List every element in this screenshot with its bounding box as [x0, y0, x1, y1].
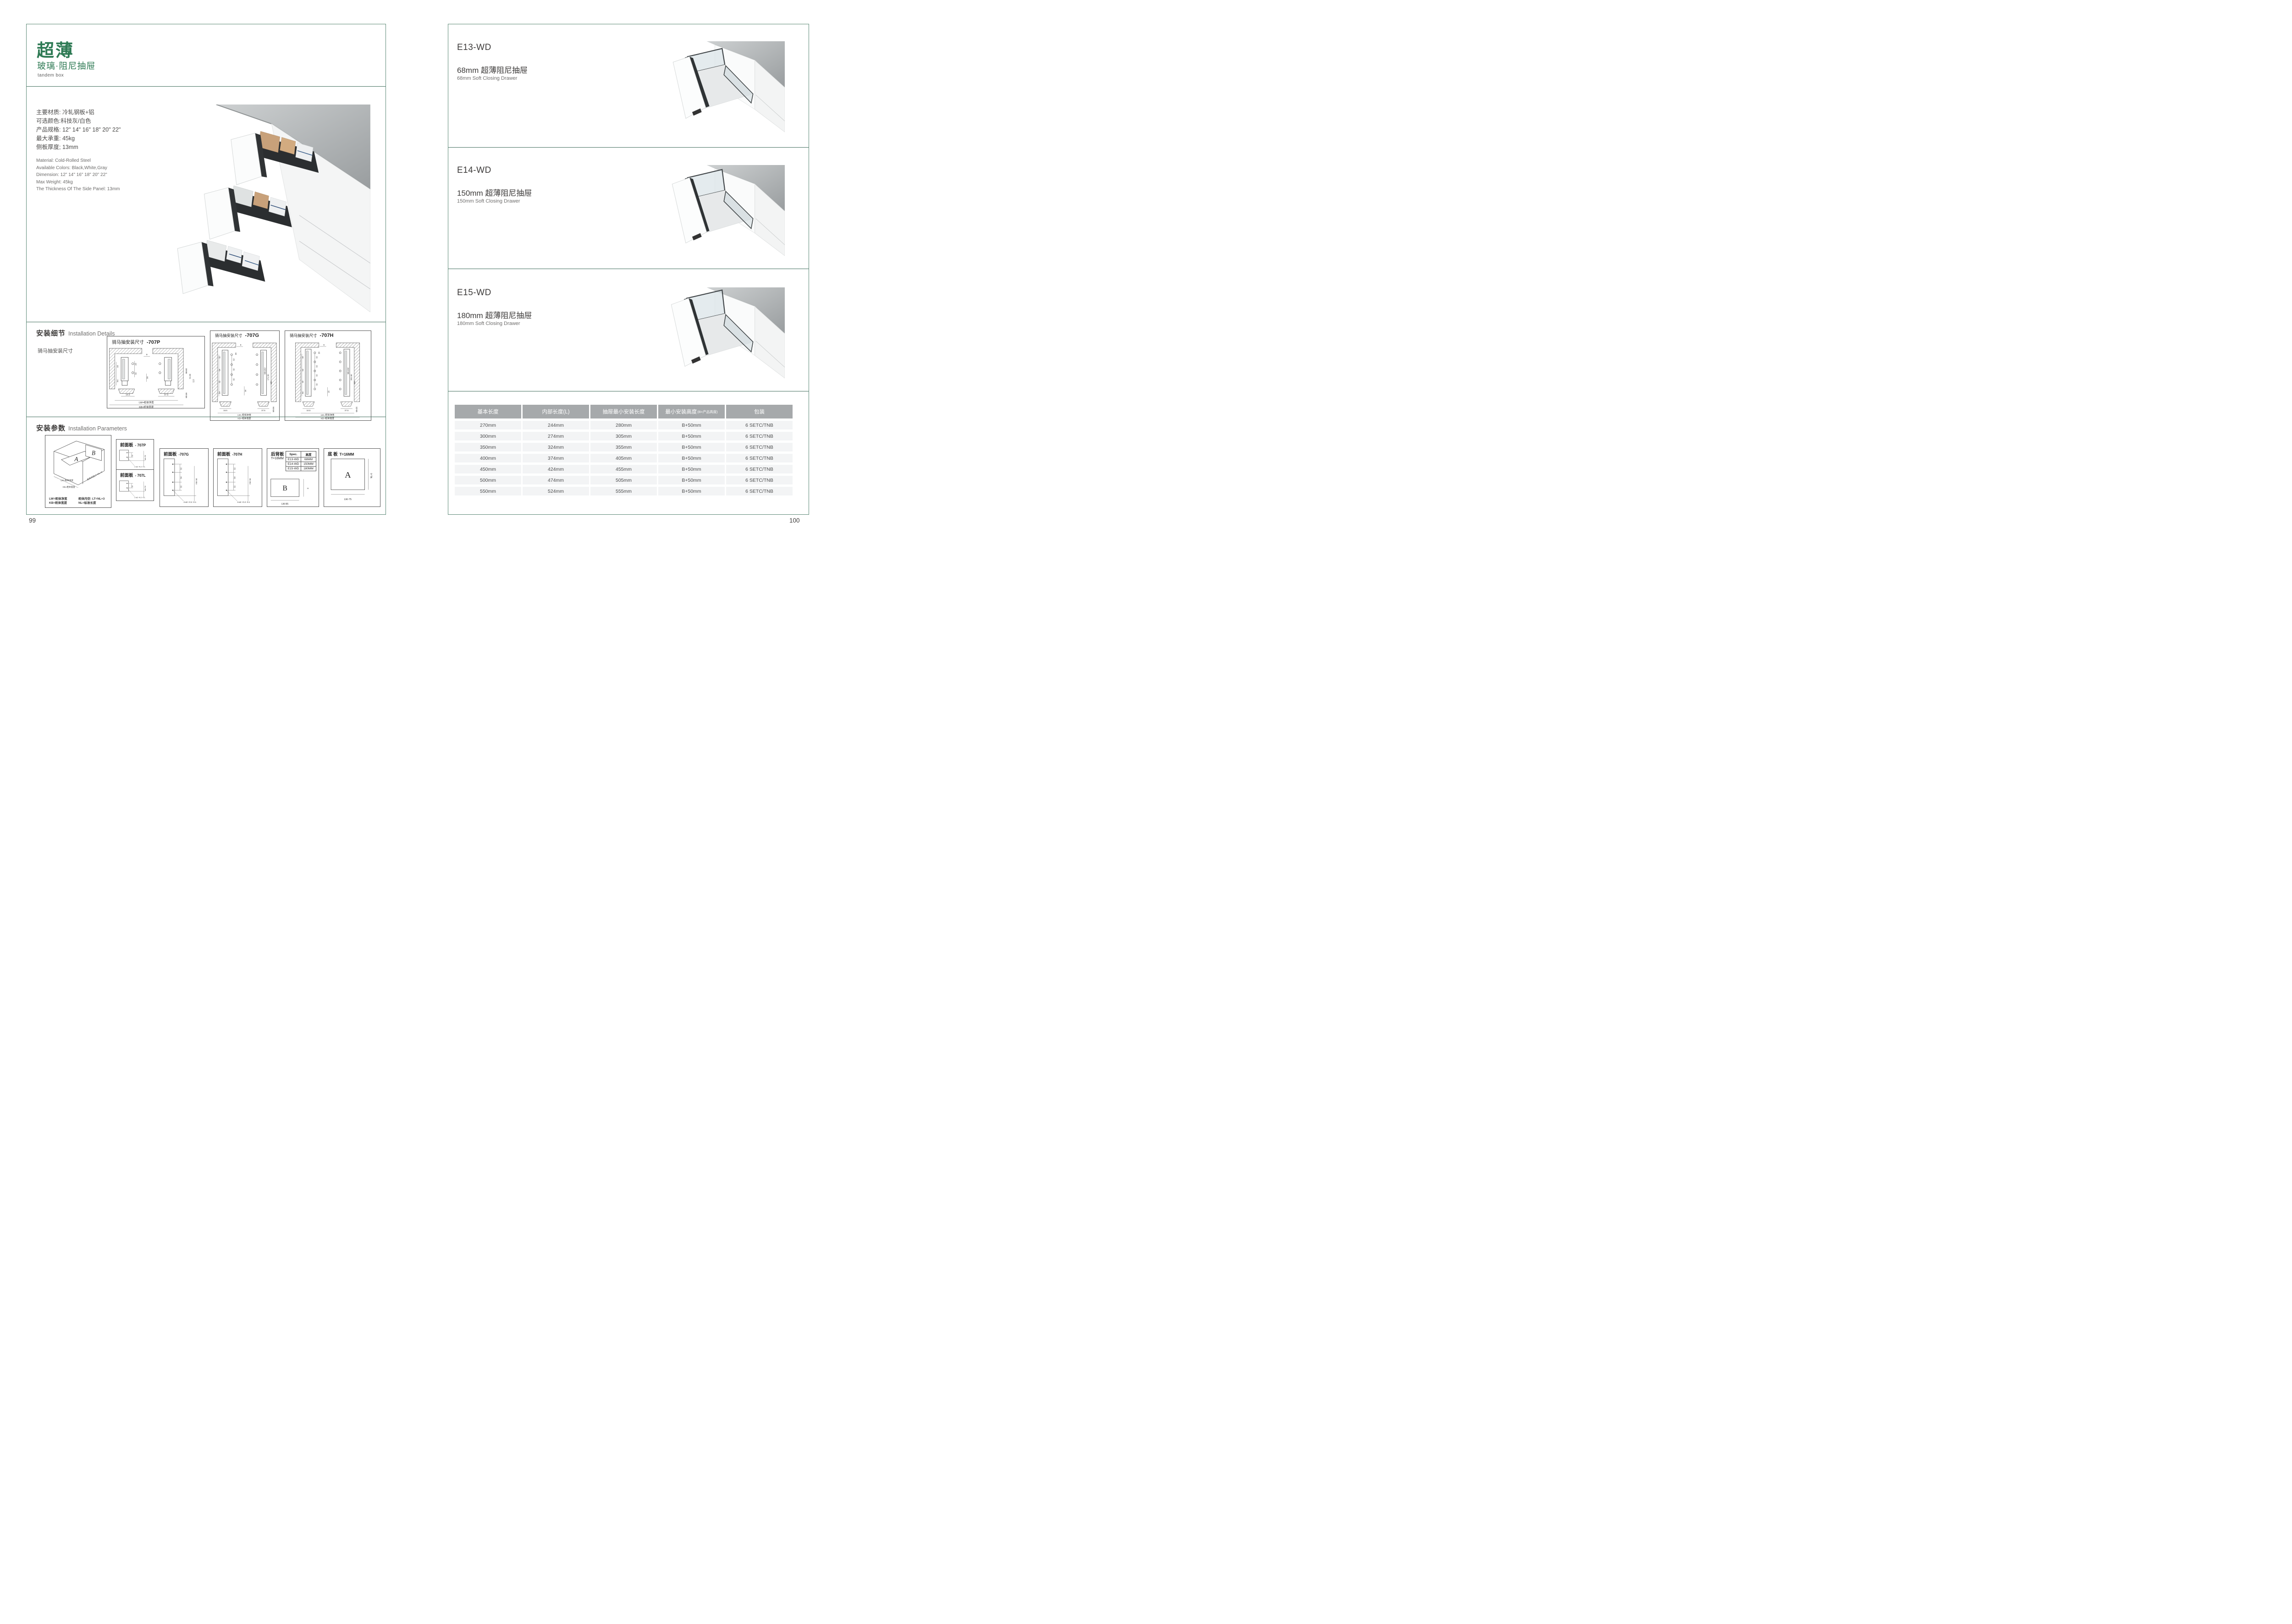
table-cell: B+50mm — [658, 421, 725, 429]
panel-title-text: 前面板 — [217, 452, 231, 457]
product-code: E14-WD — [457, 165, 491, 176]
drawing-code: -707P — [147, 340, 160, 345]
drawing-title-text: 骑马抽安装尺寸 — [290, 333, 317, 338]
dim-label: KB=柜体宽度 — [321, 417, 334, 419]
dim-label: 91.50 — [189, 374, 191, 379]
table-cell: 6 SETC/TNB — [726, 487, 793, 495]
table-cell: 300mm — [455, 432, 521, 440]
dim-label: min 54 — [144, 455, 146, 460]
dim-label: 9 — [146, 353, 148, 356]
drawing-707H-figure: 9 20 32 32 32 32 16 32 64 32 54 Min192 2… — [285, 342, 370, 419]
table-row: 270mm 244mm 280mm B+50mm 6 SETC/TNB — [455, 421, 793, 429]
dim-label: LW-75 — [344, 498, 352, 501]
legend-item: NL=标准长度 — [78, 501, 108, 505]
right-page: E13-WD 68mm 超薄阻尼抽屉 68mm Soft Closing Dra… — [448, 24, 809, 515]
table-cell: 405mm — [590, 454, 657, 462]
details-subheading: 骑马抽安装尺寸 — [38, 347, 73, 354]
panel-title: 前面板- 707L — [116, 470, 154, 478]
divider — [448, 269, 809, 269]
bottom-panel-figure: A NL-6 LW-75 — [324, 457, 379, 503]
dim-label: 113 — [193, 379, 195, 383]
rear-spec-table: Spec.高度 E13-WD68MM E14-WD150MM E15-WD180… — [286, 451, 316, 471]
spec-line: 侧板厚度; 13mm — [36, 143, 121, 152]
spec-line: 最大承重: 45kg — [36, 134, 121, 143]
dim-label: 64 — [180, 476, 182, 479]
drawing-title: 骑马抽安装尺寸-707P — [107, 336, 204, 347]
table-cell: 270mm — [455, 421, 521, 429]
legend-item: 柜体内空: LT=NL+3 — [78, 497, 108, 501]
dim-label: 9 — [240, 344, 242, 346]
spec-line: 主要材质: 冷轧钢板+铝 — [36, 108, 121, 117]
panel-title: 前面板- 707P — [116, 440, 154, 448]
spec-line: Max Weight: 45kg — [36, 179, 120, 186]
dim-label: Min36 — [356, 407, 358, 413]
column-header: 基本长度 — [455, 405, 521, 418]
dim-label: min 54 — [195, 478, 198, 484]
page-tagline: tandem box — [38, 73, 64, 78]
spec-table: 基本长度 内部长度(L) 抽屉最小安装长度 最小安装高度(B=产品高度) 包装 … — [455, 405, 793, 498]
dim-label: 201.50 — [350, 374, 353, 380]
spec-header: 高度 — [301, 451, 316, 457]
dim-label: 16.5 — [126, 393, 130, 396]
spec-line: Available Colors: Black,White,Gray — [36, 165, 120, 172]
product-code: E15-WD — [457, 288, 491, 298]
page-number-right: 100 — [789, 517, 800, 524]
drawing-title-text: 骑马抽安装尺寸 — [112, 340, 144, 345]
dim-label: 32 — [219, 356, 221, 358]
table-cell: B+50mm — [658, 443, 725, 451]
table-cell: B+50mm — [658, 454, 725, 462]
panel-code: - 707P — [135, 443, 146, 447]
dim-label: 4-ø2 +0.2 -0.1 — [183, 501, 196, 503]
dim-label: LW=柜体净宽 — [139, 401, 154, 404]
panel-title-text: 前面板 — [120, 473, 133, 478]
panel-front-707H: 前面板-707H 32 64 32 min 54 4-ø2 +0.2 -0.1 — [213, 448, 262, 507]
dim-label: Min36 — [272, 407, 275, 413]
panel-cabinet-iso: A B LW=柜体净宽 KB=柜体宽度 柜体内空LT=NL+3 LW=柜体净宽柜… — [45, 435, 111, 508]
table-cell: 280mm — [590, 421, 657, 429]
dim-label: 32 — [219, 380, 221, 383]
dim-label: 37.5 — [164, 393, 169, 396]
dim-label: 171.50 — [267, 374, 269, 380]
drawer-middle — [204, 186, 292, 239]
panel-title-text: 后背板 — [271, 452, 284, 457]
spec-cell: 150MM — [301, 462, 316, 467]
front-panel-figure: 32 min 54 2-ø2 +0.2 -0.1 — [116, 478, 153, 500]
panel-code: -707G — [179, 452, 189, 457]
drawing-title: 骑马抽安装尺寸-707H — [285, 331, 371, 342]
table-cell: 6 SETC/TNB — [726, 432, 793, 440]
divider — [448, 147, 809, 148]
dim-label: min 54 — [249, 478, 251, 484]
table-cell: 350mm — [455, 443, 521, 451]
table-row: 300mm 274mm 305mm B+50mm 6 SETC/TNB — [455, 432, 793, 440]
table-cell: B+50mm — [658, 432, 725, 440]
divider — [448, 391, 809, 391]
spec-line: 可选颜色:科技灰/白色 — [36, 117, 121, 126]
dim-label: H — [307, 487, 309, 490]
drawer-render — [639, 287, 785, 379]
table-cell: 474mm — [523, 476, 589, 484]
table-cell: B+50mm — [658, 476, 725, 484]
dim-label: 64 — [302, 369, 304, 371]
table-cell: 6 SETC/TNB — [726, 454, 793, 462]
spec-line: 产品规格: 12" 14" 16" 18" 20" 22" — [36, 126, 121, 134]
product-image-e15 — [639, 287, 785, 379]
dim-label: 32 — [302, 380, 304, 383]
product-name-en: 68mm Soft Closing Drawer — [457, 76, 517, 81]
dim-label: LW=柜体净宽 — [61, 479, 73, 482]
dim-label: 32 — [135, 372, 138, 375]
table-cell: 6 SETC/TNB — [726, 421, 793, 429]
dim-label: 195 — [270, 381, 272, 385]
column-header: 抽屉最小安装长度 — [590, 405, 657, 418]
panel-title: 前面板-707G — [160, 449, 208, 457]
legend-item: LW=柜体净宽 — [49, 497, 78, 501]
product-name-en: 150mm Soft Closing Drawer — [457, 198, 520, 204]
dim-label: 16 — [244, 390, 247, 392]
heading-en: Installation Parameters — [68, 425, 127, 432]
dim-label: 20 — [135, 363, 138, 365]
spec-header: Spec. — [286, 451, 301, 457]
installation-details-heading: 安装细节Installation Details — [36, 328, 115, 338]
dim-label: 32 — [234, 485, 236, 488]
table-cell: B+50mm — [658, 465, 725, 473]
panel-title: 底 板T=16MM — [324, 449, 380, 457]
catalog-spread: { "colors": { "accent_green": "#2e7a54",… — [0, 0, 830, 541]
panel-label-a: A — [74, 456, 78, 462]
spec-line: The Thickness Of The Side Panel: 13mm — [36, 186, 120, 193]
dim-label: 54 — [219, 391, 221, 394]
dim-label: 32 — [180, 485, 182, 488]
panel-thickness: T=16MM — [340, 452, 354, 457]
panel-title: 前面板-707H — [214, 449, 262, 457]
drawing-code: -707G — [245, 333, 259, 338]
dim-label: KB=柜体宽度 — [139, 405, 154, 409]
specs-chinese: 主要材质: 冷轧钢板+铝 可选颜色:科技灰/白色 产品规格: 12" 14" 1… — [36, 108, 121, 152]
legend-item: KB=柜体宽度 — [49, 501, 78, 505]
table-cell: 355mm — [590, 443, 657, 451]
drawing-code: -707H — [320, 333, 334, 338]
drawing-title-text: 骑马抽安装尺寸 — [215, 333, 242, 338]
cabinet-iso-figure: A B LW=柜体净宽 KB=柜体宽度 柜体内空LT=NL+3 — [45, 435, 110, 490]
drawing-707P-figure: 9 20 32 16 32 54 Min82 91.50 113 Min36 1… — [107, 347, 204, 409]
panel-front-707G: 前面板-707G 32 64 32 min 54 4-ø2 +0.2 -0.1 — [160, 448, 209, 507]
dim-label: 32 — [302, 356, 304, 358]
spec-cell: E15-WD — [286, 467, 301, 471]
table-row: 350mm 324mm 355mm B+50mm 6 SETC/TNB — [455, 443, 793, 451]
dim-label: Min36 — [185, 392, 187, 398]
spec-cell: E14-WD — [286, 462, 301, 467]
panel-code: -707H — [232, 452, 242, 457]
front-panel-figure: 32 64 32 min 54 4-ø2 +0.2 -0.1 — [160, 457, 207, 505]
drawing-707H: 骑马抽安装尺寸-707H 9 20 32 32 32 32 — [285, 330, 371, 421]
dim-label: 37.5 — [345, 409, 349, 412]
dim-label: 32 — [132, 485, 133, 487]
product-code: E13-WD — [457, 43, 491, 53]
dim-label: 54 — [116, 380, 119, 382]
dim-label: Min162 — [264, 367, 266, 374]
table-cell: 524mm — [523, 487, 589, 495]
product-name-cn: 180mm 超薄阻尼抽屉 — [457, 309, 532, 320]
dim-label: 20 — [235, 352, 237, 355]
dim-label: 16.5 — [307, 409, 311, 412]
panel-title-text: 前面板 — [120, 443, 133, 448]
hero-product-image — [176, 105, 370, 312]
dim-label: 32 — [316, 365, 318, 367]
drawing-title: 骑马抽安装尺寸-707G — [210, 331, 279, 342]
table-row: 500mm 474mm 505mm B+50mm 6 SETC/TNB — [455, 476, 793, 484]
dim-label: 64 — [219, 369, 221, 371]
dim-label: 柜体内空LT=NL+3 — [86, 470, 103, 481]
spec-line: Material: Cold-Rolled Steel — [36, 157, 120, 165]
product-image-e13 — [639, 41, 785, 132]
spec-line: Dimension: 12" 14" 16" 18" 20" 22" — [36, 171, 120, 179]
table-cell: 6 SETC/TNB — [726, 465, 793, 473]
drawer-render — [639, 41, 785, 132]
page-subtitle: 玻璃·阻尼抽屉 — [37, 59, 95, 72]
spec-cell: 180MM — [301, 467, 316, 471]
dim-label: 32 — [232, 378, 235, 380]
dim-label: LW-85 — [281, 503, 288, 506]
dim-label: 32 — [232, 368, 235, 370]
table-cell: 550mm — [455, 487, 521, 495]
panel-bottom: 底 板T=16MM A NL-6 LW-75 — [324, 448, 380, 507]
dim-label: LW=柜体净宽 — [237, 413, 251, 417]
table-row: 450mm 424mm 455mm B+50mm 6 SETC/TNB — [455, 465, 793, 473]
dim-label: 2-ø2 +0.2 -0.1 — [134, 497, 145, 499]
dim-label: 4-ø2 +0.2 -0.1 — [237, 501, 250, 503]
table-cell: 274mm — [523, 432, 589, 440]
specs-english: Material: Cold-Rolled Steel Available Co… — [36, 157, 120, 193]
dim-label: 32 — [116, 365, 119, 368]
dim-label: 9 — [323, 344, 325, 346]
table-cell: 6 SETC/TNB — [726, 443, 793, 451]
product-image-e14 — [639, 165, 785, 256]
panel-code: - 707L — [135, 473, 146, 478]
heading-cn: 安装参数 — [36, 424, 66, 432]
dim-label: NL-6 — [370, 473, 373, 478]
table-cell: 450mm — [455, 465, 521, 473]
page-title: 超薄 — [37, 36, 74, 61]
panel-label-b: B — [92, 450, 95, 457]
table-cell: 455mm — [590, 465, 657, 473]
dim-label: 2-ø2 +0.2 -0.1 — [134, 466, 145, 468]
panel-label: B — [283, 484, 287, 492]
drawer-render — [639, 165, 785, 256]
dim-label: Min82 — [185, 368, 187, 374]
column-header: 包装 — [726, 405, 793, 418]
drawing-707G: 骑马抽安装尺寸-707G 9 20 32 32 32 16 — [210, 330, 280, 421]
dim-label: 64 — [234, 476, 236, 479]
table-cell: 424mm — [523, 465, 589, 473]
dim-label: KB=柜体宽度 — [63, 485, 75, 489]
dim-label: 54 — [302, 391, 304, 394]
installation-parameters-heading: 安装参数Installation Parameters — [36, 423, 127, 433]
dim-label: 32 — [316, 356, 318, 358]
dim-label: 16 — [146, 376, 149, 379]
dim-label: KB=柜体宽度 — [237, 417, 251, 419]
rear-panel-figure: B H LW-85 — [268, 477, 318, 506]
dim-label: 32 — [132, 455, 133, 457]
table-cell: 305mm — [590, 432, 657, 440]
divider — [27, 417, 386, 417]
dim-label: 32 — [180, 468, 182, 470]
table-cell: 555mm — [590, 487, 657, 495]
table-cell: 400mm — [455, 454, 521, 462]
front-panel-figure: 32 64 32 min 54 4-ø2 +0.2 -0.1 — [214, 457, 261, 505]
heading-cn: 安装细节 — [36, 330, 66, 337]
dim-label: min 54 — [144, 486, 146, 491]
page-number-left: 99 — [29, 517, 36, 524]
panel-front-707P: 前面板- 707P 32 min 54 2-ø2 +0.2 -0.1 — [116, 439, 154, 470]
dim-label: 16.5 — [223, 409, 227, 412]
table-cell: 324mm — [523, 443, 589, 451]
product-name-cn: 150mm 超薄阻尼抽屉 — [457, 187, 532, 198]
divider — [27, 322, 386, 322]
panel-title-text: 底 板 — [328, 452, 338, 457]
column-header: 内部长度(L) — [523, 405, 589, 418]
dim-label: 37.5 — [261, 409, 265, 412]
table-cell: 6 SETC/TNB — [726, 476, 793, 484]
product-name-en: 180mm Soft Closing Drawer — [457, 321, 520, 326]
column-header-main: 最小安装高度 — [665, 408, 697, 415]
panel-rear: 后背板T=16MM Spec.高度 E13-WD68MM E14-WD150MM… — [267, 448, 319, 507]
spec-cell: 68MM — [301, 457, 316, 462]
column-header: 最小安装高度(B=产品高度) — [658, 405, 725, 418]
table-cell: 374mm — [523, 454, 589, 462]
table-cell: 500mm — [455, 476, 521, 484]
panel-label: A — [345, 470, 351, 479]
dim-label: 32 — [316, 383, 318, 385]
table-cell: 244mm — [523, 421, 589, 429]
panel-front-707L: 前面板- 707L 32 min 54 2-ø2 +0.2 -0.1 — [116, 469, 154, 501]
dim-label: Min192 — [347, 367, 349, 374]
drawing-707P: 骑马抽安装尺寸-707P 9 20 32 16 3 — [107, 336, 205, 408]
dim-label: 16 — [327, 391, 330, 393]
product-name-cn: 68mm 超薄阻尼抽屉 — [457, 64, 528, 75]
table-row: 400mm 374mm 405mm B+50mm 6 SETC/TNB — [455, 454, 793, 462]
dim-label: 225 — [353, 381, 356, 385]
panel-title-text: 前面板 — [164, 452, 177, 457]
table-cell: B+50mm — [658, 487, 725, 495]
table-row: 550mm 524mm 555mm B+50mm 6 SETC/TNB — [455, 487, 793, 495]
dim-label: 32 — [232, 358, 235, 361]
drawing-707G-figure: 9 20 32 32 32 16 32 64 32 54 Min162 171.… — [210, 342, 278, 419]
table-header-row: 基本长度 内部长度(L) 抽屉最小安装长度 最小安装高度(B=产品高度) 包装 — [455, 405, 793, 418]
dim-label: 32 — [316, 374, 318, 376]
dim-label: 32 — [234, 468, 236, 470]
dim-label: 20 — [318, 352, 320, 354]
divider — [27, 86, 386, 87]
iso-legend: LW=柜体净宽柜体内空: LT=NL+3 KB=柜体宽度NL=标准长度 — [49, 497, 108, 505]
table-cell: 505mm — [590, 476, 657, 484]
left-page: 超薄 玻璃·阻尼抽屉 tandem box 主要材质: 冷轧钢板+铝 可选颜色:… — [26, 24, 386, 515]
front-panel-figure: 32 min 54 2-ø2 +0.2 -0.1 — [116, 448, 153, 469]
column-header-sub: (B=产品高度) — [697, 409, 717, 414]
spec-cell: E13-WD — [286, 457, 301, 462]
drawer-bottom — [177, 240, 265, 294]
